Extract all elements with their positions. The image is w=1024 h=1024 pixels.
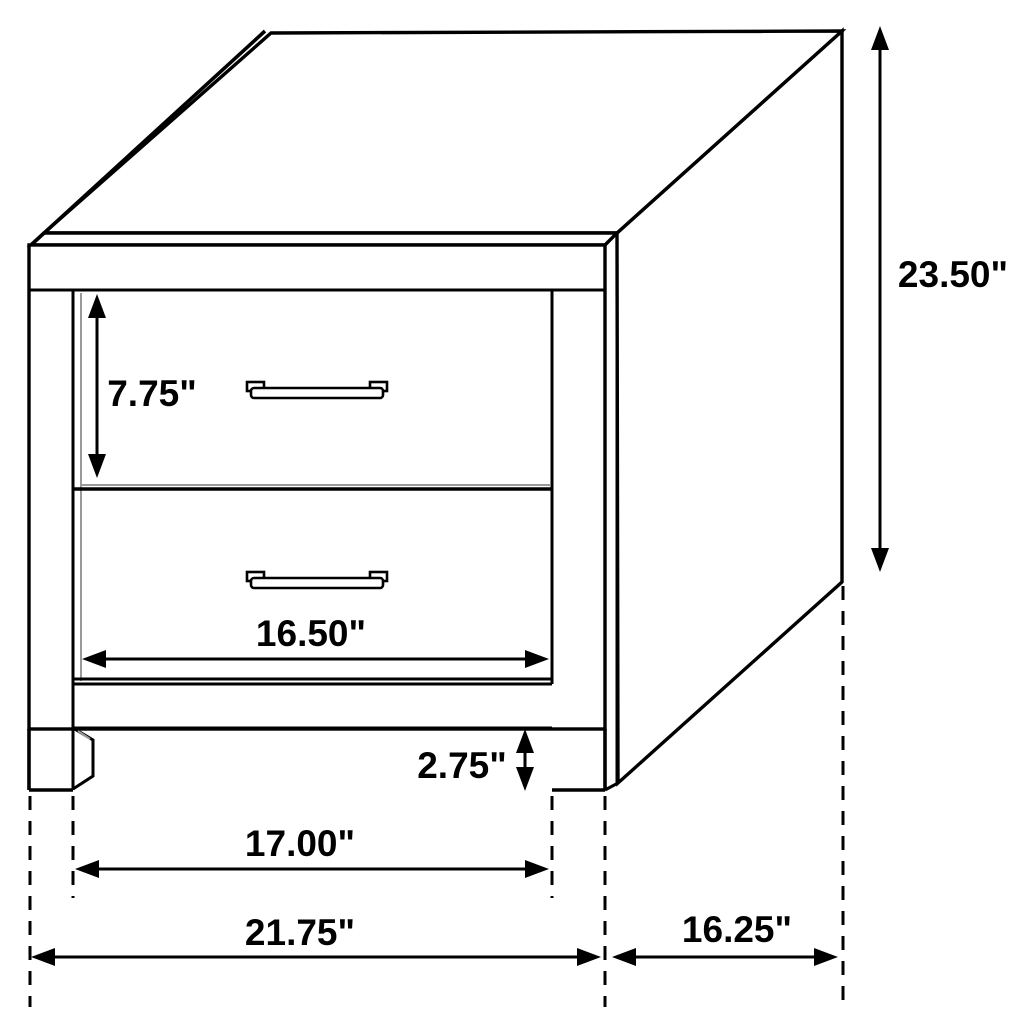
dimension-label: 16.25" <box>682 909 792 950</box>
left-leg-inner-face <box>73 728 93 789</box>
dimension-depth: 16.25" <box>612 909 838 966</box>
arrowhead-down-icon <box>871 548 889 572</box>
top-rim-band <box>31 233 617 245</box>
arrowhead-right-icon <box>577 948 601 966</box>
dimension-label: 23.50" <box>898 254 1008 295</box>
arrowhead-right-icon <box>525 860 549 878</box>
dimension-leg-height: 2.75" <box>417 729 534 791</box>
arrowhead-down-icon <box>516 767 534 791</box>
dimension-overall-width: 21.75" <box>31 912 601 966</box>
corner-post-bottom-line <box>605 783 618 790</box>
arrowhead-right-icon <box>814 948 838 966</box>
arrowhead-left-icon <box>31 948 55 966</box>
dimension-height: 23.50" <box>871 26 1008 572</box>
dimension-leg-span: 17.00" <box>75 823 549 878</box>
dimension-label: 7.75" <box>107 373 197 414</box>
arrowhead-left-icon <box>75 860 99 878</box>
handle-bar <box>251 578 383 588</box>
front-face <box>29 245 605 729</box>
nightstand-dimension-diagram: 23.50" 7.75" 16.50" 2.75" 17.00" 21.75" <box>0 0 1024 1024</box>
dimension-label: 16.50" <box>256 613 366 654</box>
right-leg <box>552 729 605 790</box>
diagram-canvas: 23.50" 7.75" 16.50" 2.75" 17.00" 21.75" <box>0 0 1024 1024</box>
arrowhead-up-icon <box>516 729 534 753</box>
left-leg <box>29 728 93 790</box>
dimension-label: 21.75" <box>245 912 355 953</box>
arrowhead-up-icon <box>871 26 889 50</box>
dimension-label: 2.75" <box>417 745 507 786</box>
arrowhead-left-icon <box>612 948 636 966</box>
left-leg-inner-shadow <box>78 731 90 739</box>
handle-bar <box>251 388 383 398</box>
dimension-label: 17.00" <box>245 823 355 864</box>
